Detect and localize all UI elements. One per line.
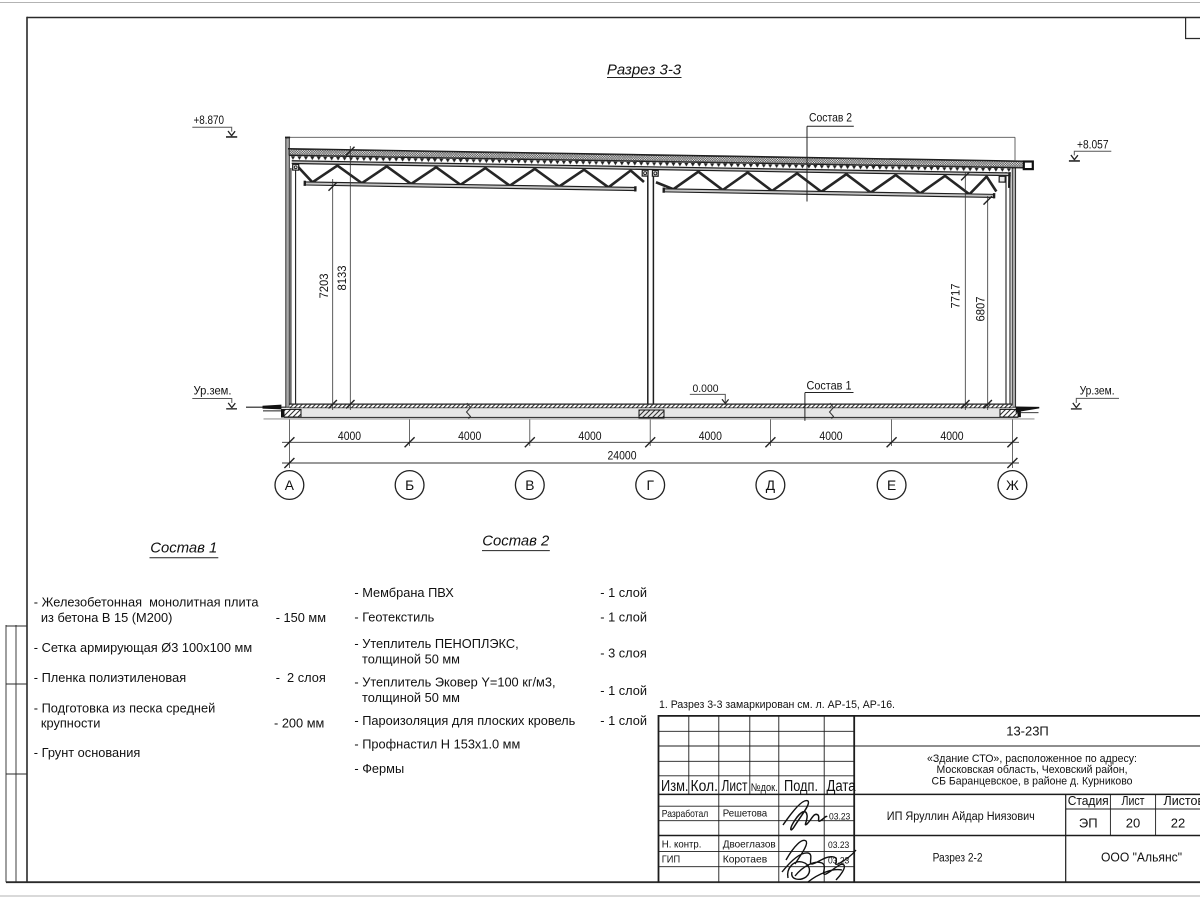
svg-text:- 1 слой: - 1 слой bbox=[600, 610, 647, 625]
svg-text:«Здание СТО», расположенное по: «Здание СТО», расположенное по адресу: bbox=[927, 753, 1137, 765]
svg-text:4000: 4000 bbox=[699, 430, 722, 443]
svg-text:Дата: Дата bbox=[827, 778, 856, 795]
svg-text:Лист: Лист bbox=[1122, 794, 1145, 808]
svg-text:толщиной 50 мм: толщиной 50 мм bbox=[362, 690, 460, 705]
svg-text:+8.870: +8.870 bbox=[194, 115, 225, 127]
svg-text:Разработал: Разработал bbox=[662, 808, 708, 820]
svg-text:- 3 слоя: - 3 слоя bbox=[600, 645, 647, 660]
svg-text:Кол.: Кол. bbox=[691, 778, 719, 795]
svg-text:Ур.зем.: Ур.зем. bbox=[194, 385, 232, 397]
svg-text:Е: Е bbox=[887, 478, 896, 493]
svg-text:- 1 слой: - 1 слой bbox=[600, 683, 647, 698]
svg-text:20: 20 bbox=[1126, 816, 1140, 831]
svg-text:Лист: Лист bbox=[722, 778, 748, 795]
svg-text:А: А bbox=[285, 478, 295, 493]
svg-text:Б: Б bbox=[405, 478, 414, 493]
svg-text:Стадия: Стадия bbox=[1068, 794, 1109, 808]
svg-text:13-23П: 13-23П bbox=[1006, 724, 1049, 739]
svg-text:- Фермы: - Фермы bbox=[354, 761, 404, 776]
svg-text:- Пароизоляция для плоских кро: - Пароизоляция для плоских кровель bbox=[354, 713, 575, 728]
svg-text:1. Разрез 3-3 замаркирован см.: 1. Разрез 3-3 замаркирован см. л. АР-15,… bbox=[659, 699, 895, 711]
svg-text:7203: 7203 bbox=[318, 274, 331, 299]
svg-text:24000: 24000 bbox=[608, 450, 637, 463]
svg-text:Г: Г bbox=[646, 478, 654, 493]
svg-text:- Утеплитель ПЕНОПЛЭКС,: - Утеплитель ПЕНОПЛЭКС, bbox=[354, 636, 518, 651]
svg-text:- Профнастил Н 153x1.0 мм: - Профнастил Н 153x1.0 мм bbox=[354, 737, 520, 752]
svg-text:Ж: Ж bbox=[1006, 478, 1019, 493]
svg-text:крупности: крупности bbox=[41, 716, 101, 731]
svg-text:4000: 4000 bbox=[578, 430, 601, 443]
svg-text:4000: 4000 bbox=[458, 430, 481, 443]
svg-text:+8.057: +8.057 bbox=[1077, 139, 1109, 151]
svg-text:Разрез 2-2: Разрез 2-2 bbox=[933, 852, 983, 864]
svg-text:7717: 7717 bbox=[950, 284, 963, 309]
svg-text:- 1 слой: - 1 слой bbox=[600, 713, 647, 728]
svg-text:Состав 2: Состав 2 bbox=[809, 110, 852, 124]
svg-text:Изм.: Изм. bbox=[661, 778, 689, 795]
svg-text:0.000: 0.000 bbox=[693, 383, 719, 395]
svg-text:Решетова: Решетова bbox=[723, 807, 768, 819]
svg-text:- 2 слоя: - 2 слоя bbox=[276, 670, 326, 685]
svg-text:- 1 слой: - 1 слой bbox=[600, 585, 647, 600]
svg-text:Разрез 3-3: Разрез 3-3 bbox=[607, 62, 682, 79]
svg-text:- Железобетонная монолитная п: - Железобетонная монолитная плита bbox=[34, 595, 260, 610]
svg-text:ООО "Альянс": ООО "Альянс" bbox=[1101, 850, 1182, 864]
svg-text:03.23: 03.23 bbox=[829, 811, 850, 822]
svg-text:Двоеглазов: Двоеглазов bbox=[723, 838, 776, 850]
svg-text:6807: 6807 bbox=[975, 297, 988, 322]
svg-text:- Мембрана ПВХ: - Мембрана ПВХ bbox=[354, 585, 454, 600]
svg-text:из бетона В 15 (М200): из бетона В 15 (М200) bbox=[41, 610, 172, 625]
svg-text:4000: 4000 bbox=[940, 430, 963, 443]
svg-text:- 200 мм: - 200 мм bbox=[274, 716, 324, 731]
svg-text:03.23: 03.23 bbox=[828, 840, 849, 851]
svg-text:ЭП: ЭП bbox=[1079, 816, 1098, 831]
svg-text:- Подготовка из песка средней: - Подготовка из песка средней bbox=[34, 700, 215, 715]
svg-text:4000: 4000 bbox=[819, 430, 842, 443]
svg-text:- Грунт основания: - Грунт основания bbox=[34, 745, 141, 760]
svg-text:ИП Яруллин Айдар Ниязович: ИП Яруллин Айдар Ниязович bbox=[887, 811, 1035, 823]
svg-text:4000: 4000 bbox=[338, 430, 361, 443]
svg-text:ГИП: ГИП bbox=[662, 853, 680, 865]
svg-text:- Сетка армирующая Ø3 100x100: - Сетка армирующая Ø3 100x100 мм bbox=[34, 640, 252, 655]
svg-text:СБ Баранцевское, в районе д. К: СБ Баранцевское, в районе д. Курниково bbox=[932, 775, 1133, 787]
svg-text:22: 22 bbox=[1171, 816, 1185, 831]
svg-text:- Утеплитель Эковер Y=100 кг/м: - Утеплитель Эковер Y=100 кг/м3, bbox=[354, 675, 555, 690]
svg-text:- 150 мм: - 150 мм bbox=[276, 610, 326, 625]
svg-text:Коротаев: Коротаев bbox=[723, 853, 768, 865]
svg-text:8133: 8133 bbox=[336, 266, 349, 291]
svg-text:- Пленка полиэтиленовая: - Пленка полиэтиленовая bbox=[34, 670, 186, 685]
svg-text:Д: Д bbox=[766, 478, 776, 493]
svg-text:Состав 2: Состав 2 bbox=[482, 534, 549, 550]
svg-text:Состав 1: Состав 1 bbox=[150, 541, 217, 557]
svg-text:В: В bbox=[525, 478, 534, 493]
svg-text:№док.: №док. bbox=[751, 782, 778, 794]
svg-text:Листов: Листов bbox=[1164, 794, 1200, 808]
svg-text:толщиной 50 мм: толщиной 50 мм bbox=[362, 651, 460, 666]
svg-text:Подп.: Подп. bbox=[784, 778, 818, 795]
svg-text:Состав 1: Состав 1 bbox=[807, 379, 852, 393]
svg-text:- Геотекстиль: - Геотекстиль bbox=[354, 610, 434, 625]
svg-text:Ур.зем.: Ур.зем. bbox=[1080, 385, 1115, 397]
svg-text:Н. контр.: Н. контр. bbox=[662, 838, 702, 850]
